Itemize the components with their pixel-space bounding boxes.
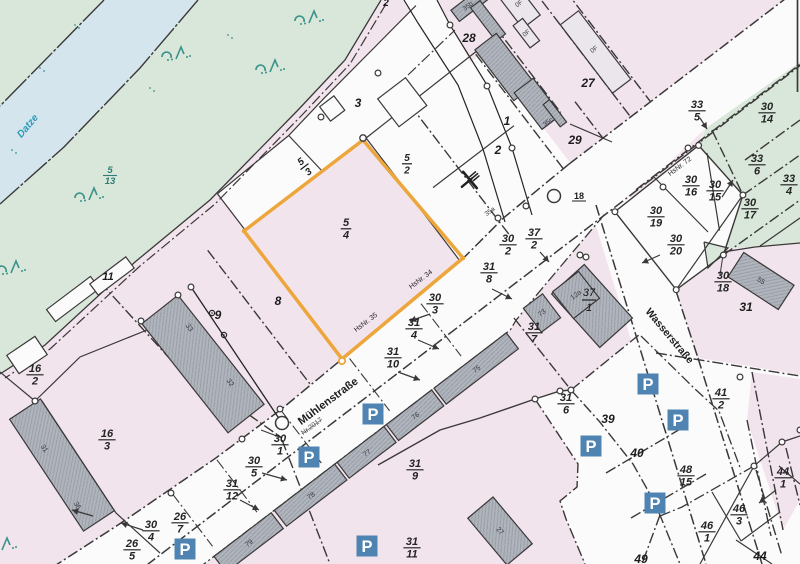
svg-text:30: 30 xyxy=(685,174,698,186)
svg-text:16: 16 xyxy=(101,428,114,440)
svg-text:27: 27 xyxy=(580,76,596,90)
svg-text:44: 44 xyxy=(752,549,767,563)
svg-text:3: 3 xyxy=(104,441,110,453)
svg-text:1: 1 xyxy=(780,479,786,491)
svg-text:30: 30 xyxy=(709,179,722,191)
svg-text:2: 2 xyxy=(31,376,38,388)
svg-text:5: 5 xyxy=(343,217,350,229)
svg-text:18: 18 xyxy=(717,283,730,295)
svg-text:30: 30 xyxy=(248,455,261,467)
svg-text:P: P xyxy=(649,495,660,513)
svg-text:30: 30 xyxy=(502,233,515,245)
svg-text:9: 9 xyxy=(215,308,222,322)
svg-text:33: 33 xyxy=(751,153,763,165)
svg-text:2: 2 xyxy=(530,240,537,252)
svg-text:2: 2 xyxy=(494,143,502,157)
svg-text:37: 37 xyxy=(583,287,596,299)
svg-text:18: 18 xyxy=(574,191,584,201)
svg-text:1: 1 xyxy=(586,302,592,314)
svg-text:8: 8 xyxy=(275,294,282,308)
svg-text:17: 17 xyxy=(744,210,757,222)
svg-text:48: 48 xyxy=(679,464,693,476)
svg-text:41: 41 xyxy=(714,387,727,399)
svg-text:5: 5 xyxy=(129,551,136,563)
svg-text:5: 5 xyxy=(107,165,113,176)
svg-text:2: 2 xyxy=(403,166,410,177)
svg-text:5: 5 xyxy=(404,153,410,164)
svg-text:5: 5 xyxy=(251,468,258,480)
svg-text:16: 16 xyxy=(685,187,698,199)
svg-text:1: 1 xyxy=(504,114,511,128)
svg-text:9: 9 xyxy=(412,471,419,483)
svg-text:31: 31 xyxy=(739,300,753,314)
svg-text:2: 2 xyxy=(717,400,724,412)
svg-text:33: 33 xyxy=(783,173,795,185)
svg-text:28: 28 xyxy=(461,31,476,45)
svg-text:30: 30 xyxy=(274,433,287,445)
svg-text:P: P xyxy=(672,412,683,430)
svg-text:P: P xyxy=(179,541,190,559)
svg-text:30: 30 xyxy=(761,101,774,113)
svg-text:15: 15 xyxy=(680,477,693,489)
svg-text:31: 31 xyxy=(560,392,572,404)
svg-text:31: 31 xyxy=(483,261,495,273)
svg-text:6: 6 xyxy=(754,166,761,178)
svg-text:30: 30 xyxy=(429,292,442,304)
svg-text:33: 33 xyxy=(691,99,703,111)
svg-text:39: 39 xyxy=(601,412,615,426)
svg-text:3: 3 xyxy=(355,96,362,110)
svg-text:P: P xyxy=(367,406,378,424)
svg-text:31: 31 xyxy=(226,478,238,490)
svg-text:29: 29 xyxy=(567,133,582,147)
svg-text:31: 31 xyxy=(406,536,418,548)
svg-text:4: 4 xyxy=(147,532,154,544)
svg-text:14: 14 xyxy=(761,114,773,126)
svg-text:P: P xyxy=(585,438,596,456)
svg-text:P: P xyxy=(303,449,314,467)
svg-text:5: 5 xyxy=(694,112,701,124)
svg-text:P: P xyxy=(361,538,372,556)
svg-text:7: 7 xyxy=(177,524,184,536)
svg-text:40: 40 xyxy=(629,446,644,460)
svg-text:30: 30 xyxy=(145,519,158,531)
svg-text:44: 44 xyxy=(776,466,789,478)
svg-text:30: 30 xyxy=(744,197,757,209)
svg-text:2: 2 xyxy=(382,0,389,9)
svg-text:46: 46 xyxy=(700,520,714,532)
svg-text:4: 4 xyxy=(342,230,349,242)
svg-text:26: 26 xyxy=(125,538,139,550)
svg-text:31: 31 xyxy=(387,346,399,358)
svg-text:11: 11 xyxy=(102,271,113,283)
svg-text:30: 30 xyxy=(670,233,683,245)
svg-text:26: 26 xyxy=(173,511,187,523)
svg-text:3: 3 xyxy=(432,305,438,317)
svg-text:31: 31 xyxy=(408,317,420,329)
svg-text:1: 1 xyxy=(277,446,283,458)
svg-text:30: 30 xyxy=(650,205,663,217)
svg-text:20: 20 xyxy=(669,246,683,258)
svg-text:6: 6 xyxy=(563,405,570,417)
svg-text:3: 3 xyxy=(736,516,742,528)
svg-text:13: 13 xyxy=(105,176,116,187)
svg-text:19: 19 xyxy=(650,218,663,230)
svg-text:30: 30 xyxy=(717,270,730,282)
svg-text:1: 1 xyxy=(704,533,710,545)
svg-text:31: 31 xyxy=(409,458,421,470)
svg-text:7: 7 xyxy=(531,334,538,346)
svg-text:16: 16 xyxy=(29,363,42,375)
svg-text:4: 4 xyxy=(410,330,417,342)
svg-text:4: 4 xyxy=(785,186,792,198)
svg-text:49: 49 xyxy=(633,552,648,564)
svg-text:11: 11 xyxy=(406,549,417,561)
svg-text:P: P xyxy=(642,376,653,394)
svg-text:10: 10 xyxy=(387,359,400,371)
svg-text:8: 8 xyxy=(486,274,493,286)
svg-text:2: 2 xyxy=(504,246,511,258)
svg-text:15: 15 xyxy=(709,192,722,204)
svg-text:31: 31 xyxy=(528,321,540,333)
svg-text:37: 37 xyxy=(528,227,541,239)
svg-text:46: 46 xyxy=(732,503,746,515)
svg-text:12: 12 xyxy=(226,491,238,503)
